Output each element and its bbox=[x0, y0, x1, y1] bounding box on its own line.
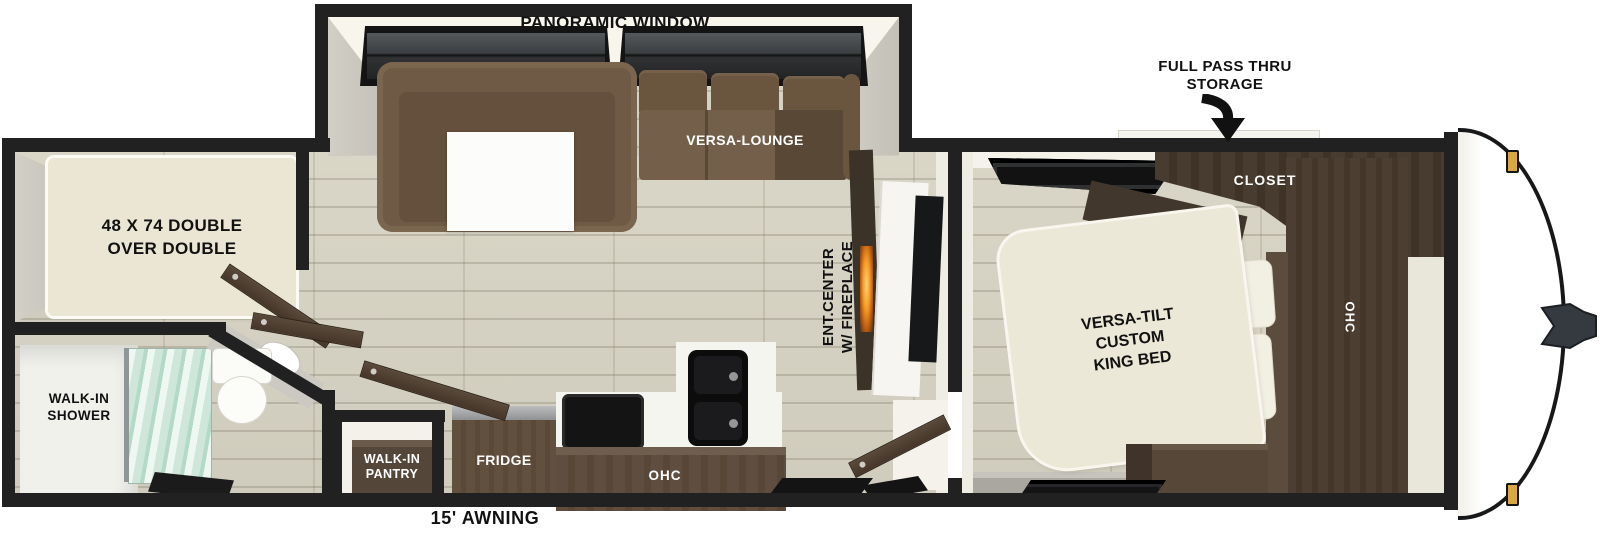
panoramic-window-label: PANORAMIC WINDOW bbox=[380, 13, 850, 33]
faucet-icon bbox=[729, 372, 738, 381]
ent-center-label: ENT.CENTER W/ FIREPLACE bbox=[819, 197, 857, 397]
slideout-wall bbox=[899, 4, 912, 152]
walk-in-pantry-label: WALK-IN PANTRY bbox=[342, 452, 442, 482]
door-hinge-icon bbox=[260, 319, 267, 326]
bedroom-ohc-label: OHC bbox=[1343, 278, 1358, 358]
toilet-bowl bbox=[217, 376, 267, 424]
faucet-icon bbox=[729, 419, 738, 428]
king-bed: VERSA-TILT CUSTOM KING BED bbox=[996, 206, 1263, 473]
stove-cooktop bbox=[562, 394, 644, 450]
wall bbox=[1444, 132, 1458, 510]
bedroom-divider-wall-face bbox=[962, 152, 973, 493]
fireplace-flame-icon bbox=[860, 246, 873, 332]
awning-label: 15' AWNING bbox=[370, 508, 600, 529]
kitchen-ohc-label: OHC bbox=[600, 468, 730, 483]
walk-in-shower-label: WALK-IN SHOWER bbox=[24, 390, 134, 424]
versa-lounge-label: VERSA-LOUNGE bbox=[660, 132, 830, 148]
wall bbox=[2, 493, 1458, 507]
shower-glass-door bbox=[128, 348, 212, 484]
pantry-wall bbox=[330, 410, 445, 422]
pantry-wall bbox=[330, 410, 342, 495]
floorplan-canvas: VERSA-TILT CUSTOM KING BED PANORAMIC WIN… bbox=[0, 0, 1600, 540]
fridge-label: FRIDGE bbox=[452, 452, 556, 468]
bedroom-divider-wall bbox=[948, 478, 962, 498]
dinette-table bbox=[447, 132, 574, 231]
wall bbox=[8, 138, 330, 152]
marker-light-icon bbox=[1506, 483, 1519, 506]
bunkroom-wall bbox=[8, 322, 226, 335]
door-hinge-icon bbox=[858, 461, 866, 469]
closet-label: CLOSET bbox=[1200, 172, 1330, 188]
wall bbox=[905, 138, 1458, 152]
slideout-wall bbox=[315, 4, 328, 152]
hitch-coupler-icon bbox=[1540, 300, 1598, 352]
door-hinge-icon bbox=[370, 368, 377, 375]
sofa-back-cushion bbox=[639, 70, 707, 114]
king-bed-label: VERSA-TILT CUSTOM KING BED bbox=[1080, 303, 1180, 377]
full-pass-thru-storage-label: FULL PASS THRU STORAGE bbox=[1110, 58, 1340, 94]
bedroom-divider-wall bbox=[948, 152, 962, 392]
marker-light-icon bbox=[1506, 150, 1519, 173]
door-hinge-icon bbox=[231, 273, 239, 281]
bunk-bed-label: 48 X 74 DOUBLE OVER DOUBLE bbox=[52, 214, 292, 260]
bunkroom-wall bbox=[296, 152, 309, 270]
storage-arrow-icon bbox=[1192, 94, 1272, 146]
